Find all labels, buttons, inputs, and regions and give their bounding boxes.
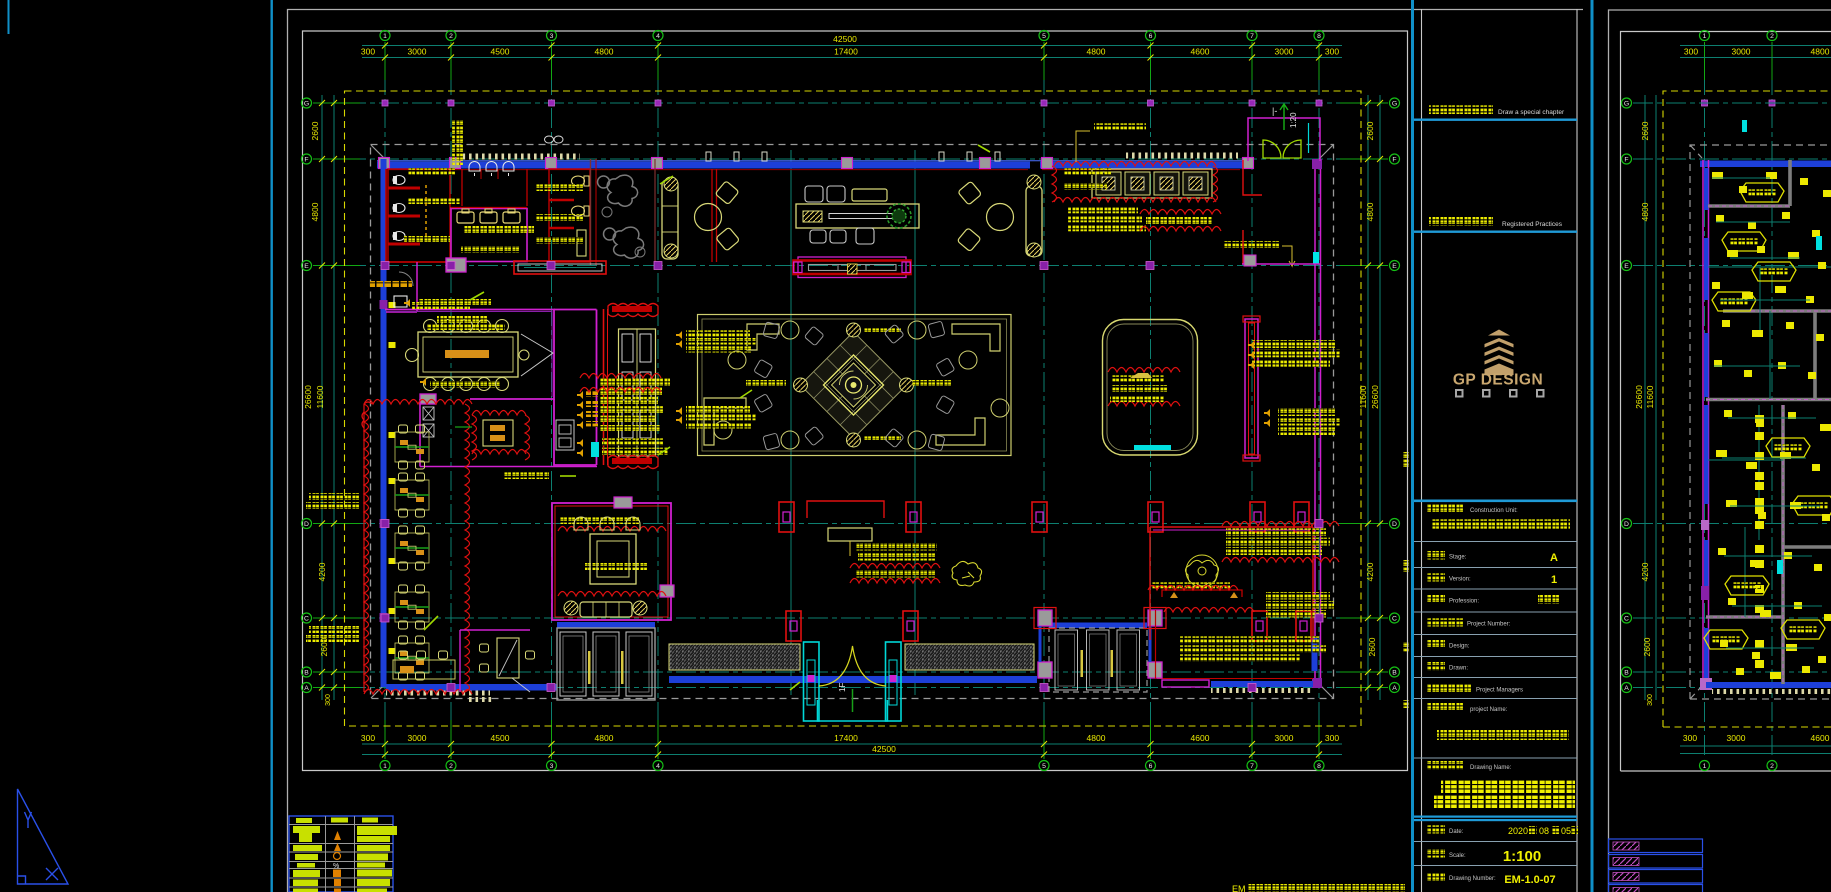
svg-text:E: E [304,263,309,270]
svg-text:Project Number:: Project Number: [1467,622,1511,628]
svg-text:EM: EM [1232,884,1246,892]
svg-text:F: F [1392,156,1396,163]
svg-text:C: C [1624,615,1629,622]
svg-text:Profession:: Profession: [1449,599,1479,605]
svg-text:3000: 3000 [1727,733,1746,743]
svg-text:1: 1 [383,33,387,40]
svg-text:D: D [1624,521,1629,528]
svg-text:4500: 4500 [491,733,510,743]
svg-text:11600: 11600 [315,385,325,408]
svg-text:4: 4 [656,33,660,40]
svg-text:300: 300 [325,694,332,706]
svg-text:GP DESIGN: GP DESIGN [1453,372,1543,389]
svg-text:3000: 3000 [408,733,427,743]
svg-text:1: 1 [1703,763,1707,770]
svg-text:4200: 4200 [1640,562,1650,581]
svg-text:300: 300 [1325,47,1339,57]
svg-text:4800: 4800 [310,202,320,221]
svg-text:4200: 4200 [317,562,327,581]
svg-text:08: 08 [1539,826,1549,836]
svg-text:B: B [1392,669,1397,676]
svg-text:1: 1 [1551,574,1557,586]
svg-text:A: A [1392,685,1397,692]
svg-text:G: G [1624,100,1629,107]
svg-text:Design:: Design: [1449,644,1470,650]
svg-text:8: 8 [1317,33,1321,40]
svg-text:4800: 4800 [1365,202,1375,221]
svg-text:Drawn:: Drawn: [1449,666,1468,672]
svg-text:C: C [304,615,309,622]
svg-text:D: D [304,521,309,528]
svg-text:G: G [1392,100,1397,107]
svg-text:1:100: 1:100 [1503,848,1541,865]
svg-text:C: C [1392,615,1397,622]
svg-text:Stage:: Stage: [1449,555,1467,561]
svg-text:42500: 42500 [833,34,857,44]
svg-text:A: A [304,685,309,692]
svg-text:2600: 2600 [1367,637,1377,656]
svg-text:Date:: Date: [1449,829,1464,835]
svg-text:26600: 26600 [1634,385,1644,409]
svg-text:300: 300 [1683,733,1697,743]
svg-text:Registered Practices: Registered Practices [1502,221,1563,228]
svg-text:G: G [304,100,309,107]
svg-text:300: 300 [1325,733,1339,743]
svg-text:E: E [1624,263,1629,270]
svg-text:B: B [304,669,309,676]
svg-text:11600: 11600 [1645,385,1655,408]
svg-text:F: F [1624,156,1628,163]
svg-text:Version:: Version: [1449,577,1471,583]
svg-text:4600: 4600 [1811,733,1830,743]
svg-text:EM-1.0-07: EM-1.0-07 [1504,874,1555,886]
svg-text:3000: 3000 [408,47,427,57]
svg-text:4800: 4800 [1087,47,1106,57]
svg-text:300: 300 [1647,694,1654,706]
svg-text:Drawing Number:: Drawing Number: [1449,876,1496,882]
svg-text:3: 3 [550,33,554,40]
svg-text:17400: 17400 [834,733,858,743]
svg-text:300: 300 [361,733,375,743]
svg-text:Draw a special chapter: Draw a special chapter [1498,109,1565,116]
svg-text:5: 5 [1042,33,1046,40]
svg-text:4800: 4800 [1811,47,1830,57]
svg-text:Scale:: Scale: [1449,853,1466,859]
svg-text:4500: 4500 [491,47,510,57]
svg-text:7: 7 [1250,33,1254,40]
svg-text:Drawing Name:: Drawing Name: [1470,765,1512,771]
svg-text:Project Managers: Project Managers [1476,688,1523,694]
svg-text:E: E [1392,263,1397,270]
svg-text:2020: 2020 [1508,826,1528,836]
svg-text:05: 05 [1561,826,1571,836]
svg-text:3000: 3000 [1275,47,1294,57]
svg-text:2: 2 [449,763,453,770]
svg-text:26600: 26600 [1370,385,1380,409]
svg-text:4600: 4600 [1191,733,1210,743]
svg-text:project Name:: project Name: [1470,707,1508,713]
svg-text:D: D [1392,521,1397,528]
svg-text:%: % [333,863,339,870]
svg-text:6: 6 [1149,33,1153,40]
svg-text:300: 300 [1684,47,1698,57]
svg-text:300: 300 [361,47,375,57]
svg-text:8: 8 [1317,763,1321,770]
svg-text:7: 7 [1250,763,1254,770]
svg-text:2600: 2600 [1642,637,1652,656]
svg-text:11600: 11600 [1358,385,1368,408]
svg-text:4: 4 [656,763,660,770]
svg-text:F: F [304,156,308,163]
svg-text:26600: 26600 [303,385,313,409]
svg-text:A: A [1550,552,1558,564]
svg-text:42500: 42500 [872,744,896,754]
svg-text:A: A [1624,685,1629,692]
svg-text:4800: 4800 [595,733,614,743]
svg-text:5: 5 [1042,763,1046,770]
svg-text:17400: 17400 [834,47,858,57]
svg-text:3000: 3000 [1275,733,1294,743]
svg-text:1: 1 [1703,33,1707,40]
svg-text:4200: 4200 [1365,562,1375,581]
svg-text:2600: 2600 [310,121,320,140]
svg-text:2600: 2600 [1640,121,1650,140]
svg-text:1F: 1F [838,683,847,692]
svg-text:4600: 4600 [1191,47,1210,57]
svg-text:2: 2 [1770,763,1774,770]
svg-text:6: 6 [1149,763,1153,770]
svg-text:|-: |- [1272,106,1277,116]
svg-text:Construction Unit:: Construction Unit: [1470,508,1518,514]
svg-text:4800: 4800 [1640,202,1650,221]
svg-text:B: B [1624,669,1629,676]
svg-text:2600: 2600 [1365,121,1375,140]
svg-text:1: 1 [383,763,387,770]
svg-text:4800: 4800 [595,47,614,57]
svg-text:3000: 3000 [1732,47,1751,57]
svg-text:2: 2 [449,33,453,40]
svg-text:3: 3 [550,763,554,770]
svg-text:1:20: 1:20 [1289,112,1298,128]
svg-text:2: 2 [1770,33,1774,40]
svg-text:4800: 4800 [1087,733,1106,743]
